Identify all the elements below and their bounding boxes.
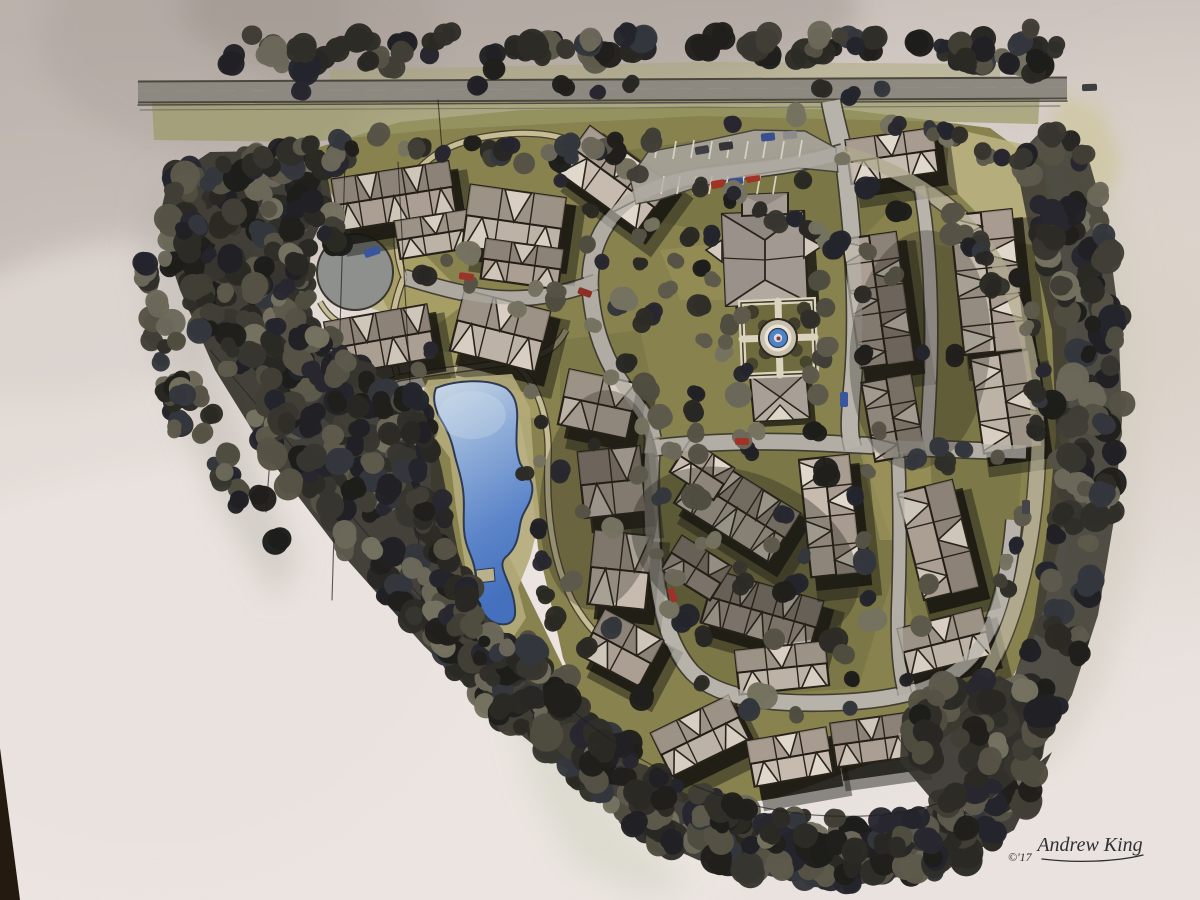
svg-text:Andrew King: Andrew King bbox=[1035, 834, 1142, 856]
svg-text:©'17: ©'17 bbox=[1008, 850, 1033, 864]
